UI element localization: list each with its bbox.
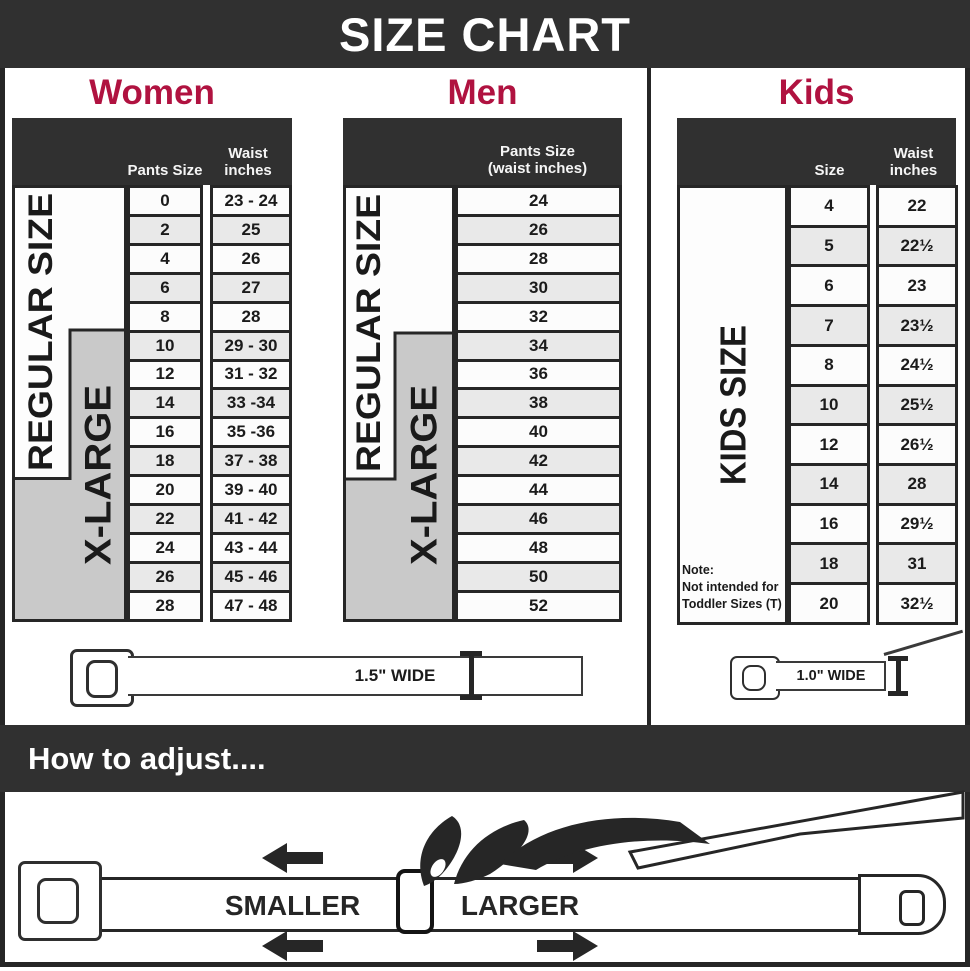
table-row: 40 (455, 416, 622, 448)
table-row: 38 (455, 387, 622, 419)
table-row: 42 (455, 445, 622, 477)
table-row: 1029 - 30 (127, 330, 292, 362)
table-row: 46 (455, 503, 622, 535)
seatbelt-buckle-icon (70, 649, 134, 707)
pants-size-cell: 8 (127, 301, 203, 333)
table-row: 623 (788, 264, 958, 307)
table-row: 24 (455, 185, 622, 217)
table-row: 1635 -36 (127, 416, 292, 448)
pants-size-cell: 34 (455, 330, 622, 362)
waist-inches-cell: 23 (876, 264, 958, 307)
pants-size-cell: 26 (455, 214, 622, 246)
kids-size-cell: 5 (788, 225, 870, 268)
pants-size-cell: 48 (455, 532, 622, 564)
kids-size-cell: 12 (788, 423, 870, 466)
kids-size-table: 422522½623723½824½1025½1226½14281629½183… (788, 185, 958, 625)
panel-border-left (0, 68, 5, 725)
waist-inches-cell: 31 - 32 (210, 359, 292, 391)
men-col-pants-size: Pants Size (waist inches) (453, 143, 622, 177)
arrow-left-icon (262, 931, 324, 961)
table-row: 522½ (788, 225, 958, 268)
pants-size-cell: 46 (455, 503, 622, 535)
table-row: 627 (127, 272, 292, 304)
panel-divider (647, 68, 651, 725)
table-row: 32 (455, 301, 622, 333)
men-table-header: Pants Size (waist inches) (343, 118, 622, 185)
table-row: 023 - 24 (127, 185, 292, 217)
table-row: 1231 - 32 (127, 359, 292, 391)
kids-col-waist: Waist inches (871, 145, 956, 179)
page-title: SIZE CHART (339, 7, 631, 62)
kids-size-cell: 7 (788, 304, 870, 347)
waist-inches-cell: 22½ (876, 225, 958, 268)
waist-inches-cell: 29 - 30 (210, 330, 292, 362)
kids-buckle-button-icon (742, 665, 766, 691)
table-row: 2443 - 44 (127, 532, 292, 564)
table-row: 824½ (788, 344, 958, 387)
smaller-label: SMALLER (225, 890, 360, 922)
adjust-heading: How to adjust.... (28, 741, 266, 777)
table-row: 30 (455, 272, 622, 304)
men-heading: Men (343, 72, 622, 114)
table-row: 2032½ (788, 582, 958, 625)
kids-size-label: KIDS SIZE (713, 325, 754, 485)
pants-size-cell: 38 (455, 387, 622, 419)
table-row: 50 (455, 561, 622, 593)
kids-col-size: Size (786, 162, 873, 179)
women-col-pants-size: Pants Size (125, 162, 205, 179)
table-row: 225 (127, 214, 292, 246)
size-chart-infographic: SIZE CHART Women Men Kids Pants Size Wai… (0, 0, 970, 971)
waist-inches-cell: 28 (876, 463, 958, 506)
waist-inches-cell: 43 - 44 (210, 532, 292, 564)
waist-inches-cell: 23 - 24 (210, 185, 292, 217)
waist-inches-cell: 37 - 38 (210, 445, 292, 477)
waist-inches-cell: 22 (876, 185, 958, 228)
pants-size-cell: 44 (455, 474, 622, 506)
pants-size-cell: 16 (127, 416, 203, 448)
pants-size-cell: 28 (455, 243, 622, 275)
belt-tip-slot (899, 890, 925, 926)
kids-size-cell: 4 (788, 185, 870, 228)
waist-inches-cell: 39 - 40 (210, 474, 292, 506)
hand-icon (380, 790, 965, 890)
adjust-section-header: How to adjust.... (0, 725, 970, 792)
men-size-range-labels: REGULAR SIZE X-LARGE (343, 185, 455, 622)
table-row: 2241 - 42 (127, 503, 292, 535)
waist-inches-cell: 33 -34 (210, 387, 292, 419)
women-size-table: 023 - 242254266278281029 - 301231 - 3214… (127, 185, 292, 622)
kids-size-cell: 16 (788, 503, 870, 546)
kids-size-range-labels: KIDS SIZE (677, 185, 788, 625)
pants-size-cell: 26 (127, 561, 203, 593)
kids-note: Note: Not intended for Toddler Sizes (T) (682, 562, 784, 613)
men-regular-size-label: REGULAR SIZE (350, 194, 388, 472)
table-row: 1433 -34 (127, 387, 292, 419)
waist-inches-cell: 45 - 46 (210, 561, 292, 593)
table-row: 2847 - 48 (127, 590, 292, 622)
adjust-border-right (965, 792, 970, 967)
women-regular-size-label: REGULAR SIZE (22, 193, 60, 471)
table-row: 26 (455, 214, 622, 246)
pants-size-cell: 36 (455, 359, 622, 391)
kids-belt-tail (884, 630, 963, 656)
pants-size-cell: 12 (127, 359, 203, 391)
waist-inches-cell: 23½ (876, 304, 958, 347)
buckle-button-icon (86, 660, 118, 698)
adjust-seatbelt-buckle-icon (18, 861, 102, 941)
title-bar: SIZE CHART (0, 0, 970, 68)
waist-inches-cell: 28 (210, 301, 292, 333)
adjust-border-bottom (0, 962, 970, 967)
kids-belt-width-label: 1.0" WIDE (778, 661, 884, 691)
waist-inches-cell: 32½ (876, 582, 958, 625)
pants-size-cell: 40 (455, 416, 622, 448)
pants-size-cell: 18 (127, 445, 203, 477)
women-table-header: Pants Size Waist inches (12, 118, 292, 185)
waist-inches-cell: 35 -36 (210, 416, 292, 448)
pants-size-cell: 20 (127, 474, 203, 506)
waist-inches-cell: 25½ (876, 384, 958, 427)
waist-inches-cell: 25 (210, 214, 292, 246)
waist-inches-cell: 26 (210, 243, 292, 275)
waist-inches-cell: 29½ (876, 503, 958, 546)
adjust-border-left (0, 792, 5, 967)
table-row: 1831 (788, 542, 958, 585)
women-heading: Women (12, 72, 292, 114)
table-row: 1629½ (788, 503, 958, 546)
pants-size-cell: 2 (127, 214, 203, 246)
table-row: 1428 (788, 463, 958, 506)
waist-inches-cell: 27 (210, 272, 292, 304)
kids-size-cell: 6 (788, 264, 870, 307)
pants-size-cell: 6 (127, 272, 203, 304)
women-xlarge-label: X-LARGE (78, 385, 119, 565)
women-col-waist: Waist inches (206, 145, 290, 179)
pants-size-cell: 10 (127, 330, 203, 362)
waist-inches-cell: 24½ (876, 344, 958, 387)
larger-label: LARGER (455, 890, 585, 922)
table-row: 1837 - 38 (127, 445, 292, 477)
kids-size-cell: 8 (788, 344, 870, 387)
table-row: 36 (455, 359, 622, 391)
panel-border-right (965, 68, 970, 725)
pants-size-cell: 24 (455, 185, 622, 217)
kids-size-cell: 18 (788, 542, 870, 585)
table-row: 723½ (788, 304, 958, 347)
width-gauge-icon (460, 651, 482, 700)
table-row: 1226½ (788, 423, 958, 466)
pants-size-cell: 4 (127, 243, 203, 275)
table-row: 48 (455, 532, 622, 564)
pants-size-cell: 52 (455, 590, 622, 622)
kids-width-gauge-icon (888, 656, 908, 696)
table-row: 44 (455, 474, 622, 506)
kids-size-cell: 14 (788, 463, 870, 506)
pants-size-cell: 50 (455, 561, 622, 593)
waist-inches-cell: 41 - 42 (210, 503, 292, 535)
kids-seatbelt-buckle-icon (730, 656, 780, 700)
pants-size-cell: 24 (127, 532, 203, 564)
table-row: 828 (127, 301, 292, 333)
table-row: 426 (127, 243, 292, 275)
pants-size-cell: 28 (127, 590, 203, 622)
table-row: 2645 - 46 (127, 561, 292, 593)
waist-inches-cell: 31 (876, 542, 958, 585)
table-row: 34 (455, 330, 622, 362)
kids-heading: Kids (677, 72, 956, 114)
table-row: 28 (455, 243, 622, 275)
table-row: 2039 - 40 (127, 474, 292, 506)
table-row: 1025½ (788, 384, 958, 427)
pants-size-cell: 14 (127, 387, 203, 419)
pants-size-cell: 32 (455, 301, 622, 333)
adult-belt-width-label: 1.5" WIDE (330, 656, 460, 696)
adjust-buckle-button-icon (37, 878, 79, 924)
arrow-left-icon (262, 843, 324, 873)
waist-inches-cell: 26½ (876, 423, 958, 466)
kids-size-cell: 10 (788, 384, 870, 427)
table-row: 422 (788, 185, 958, 228)
kids-table-header: Size Waist inches (677, 118, 956, 185)
men-size-table: 242628303234363840424446485052 (455, 185, 622, 622)
pants-size-cell: 42 (455, 445, 622, 477)
pants-size-cell: 22 (127, 503, 203, 535)
men-xlarge-label: X-LARGE (404, 385, 445, 565)
pants-size-cell: 30 (455, 272, 622, 304)
waist-inches-cell: 47 - 48 (210, 590, 292, 622)
arrow-right-icon (536, 931, 598, 961)
women-size-range-labels: REGULAR SIZE X-LARGE (12, 185, 127, 622)
pants-size-cell: 0 (127, 185, 203, 217)
table-row: 52 (455, 590, 622, 622)
kids-size-cell: 20 (788, 582, 870, 625)
